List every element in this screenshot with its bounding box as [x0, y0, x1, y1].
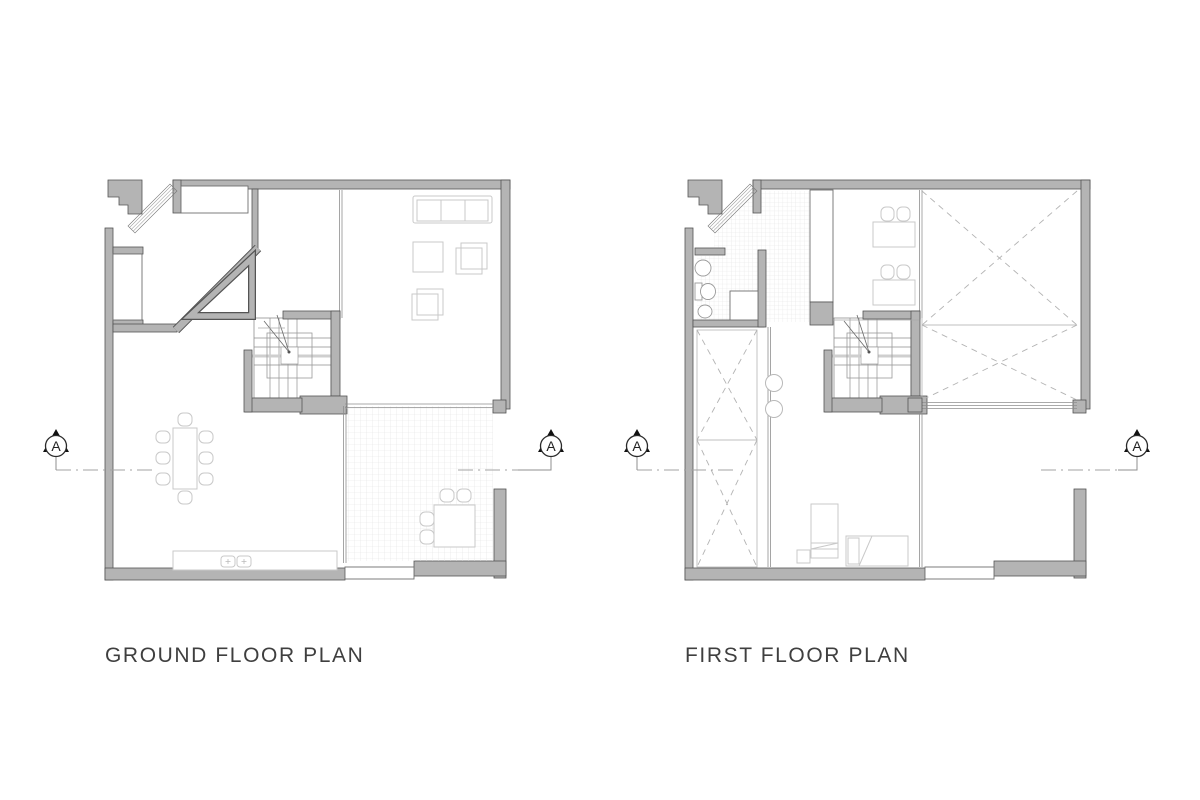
chair — [420, 512, 434, 526]
section-marker-label: A — [632, 438, 642, 454]
chair — [156, 431, 170, 443]
first-floor-plan — [685, 180, 1090, 580]
window-niche — [113, 247, 143, 327]
stool — [766, 401, 783, 418]
coffee-table — [413, 242, 443, 272]
chair — [420, 530, 434, 544]
study-desks — [833, 207, 919, 320]
void-x-upper — [922, 191, 1077, 325]
bidet — [698, 305, 712, 318]
ground-floor-title: GROUND FLOOR PLAN — [105, 644, 364, 668]
terrace — [344, 404, 494, 563]
ground-floor-plan — [105, 180, 510, 580]
chair — [156, 452, 170, 464]
toilet — [701, 284, 716, 300]
chair — [881, 207, 894, 221]
section-marker-label: A — [51, 438, 61, 454]
wardrobe-x-upper — [697, 330, 757, 440]
section-marker-ground-left: A — [43, 429, 69, 457]
hall-closet — [810, 190, 833, 302]
chair — [897, 207, 910, 221]
section-marker-ground-right: A — [538, 429, 564, 457]
living-room-furniture — [412, 196, 492, 320]
kitchen-counter — [173, 551, 337, 570]
section-marker-first-left: A — [624, 429, 650, 457]
chair — [199, 473, 213, 485]
bed — [811, 504, 838, 558]
section-lines — [56, 457, 1137, 471]
chair — [199, 452, 213, 464]
wardrobe — [697, 327, 771, 567]
diagonal-wall — [176, 248, 258, 330]
bed — [846, 536, 908, 566]
chair — [897, 265, 910, 279]
chair — [440, 489, 454, 502]
dining-table — [173, 428, 197, 489]
void-balustrade — [922, 403, 1077, 409]
first-floor-title: FIRST FLOOR PLAN — [685, 644, 910, 668]
drawing-sheet: A A A A GROUND FLOOR PLAN FIRST FLOOR PL… — [0, 0, 1200, 800]
shower-tray — [730, 291, 758, 320]
wardrobe-x-lower — [697, 440, 757, 567]
interior-wall-horizontal — [113, 324, 177, 332]
chair — [178, 413, 192, 426]
void-x-lower — [922, 325, 1077, 400]
chair — [156, 473, 170, 485]
stool — [766, 375, 783, 392]
corridor-partition — [768, 327, 771, 567]
hall-closet-wall — [810, 302, 833, 325]
glass-partition-lower — [920, 413, 923, 567]
section-marker-first-right: A — [1124, 429, 1150, 457]
chair — [199, 431, 213, 443]
bedroom-furniture — [797, 504, 908, 566]
chair — [178, 491, 192, 504]
entry-wardrobe — [181, 186, 248, 213]
interior-wall-vertical — [252, 189, 258, 250]
armchair-bottom — [412, 294, 438, 320]
desk — [873, 222, 915, 247]
section-marker-label: A — [1132, 438, 1142, 454]
chair — [881, 265, 894, 279]
chair — [457, 489, 471, 502]
armchair-right — [456, 248, 482, 274]
terrace-glass-left — [344, 406, 347, 563]
nightstand — [797, 550, 810, 563]
void-double-height — [908, 190, 1077, 412]
terrace-table — [434, 505, 475, 547]
desk — [873, 280, 915, 305]
bathroom-sink — [695, 260, 711, 276]
section-marker-label: A — [546, 438, 556, 454]
dining-set — [156, 413, 213, 504]
floor-plans-drawing: A A A A — [0, 0, 1200, 800]
